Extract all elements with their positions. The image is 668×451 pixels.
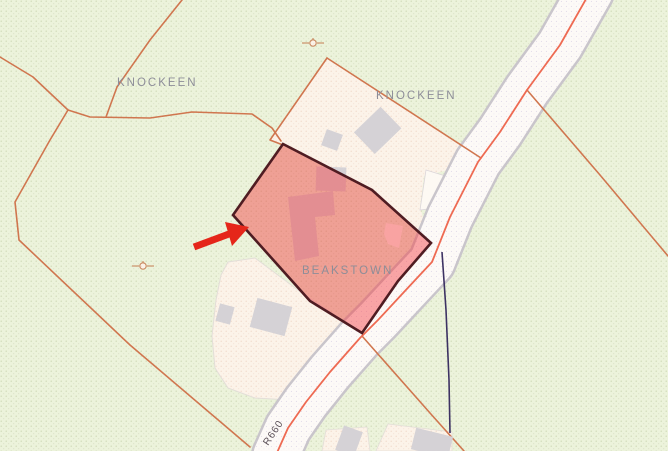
map-viewport[interactable]: KNOCKEEN KNOCKEEN BEAKSTOWN R660 — [0, 0, 668, 451]
townland-label-knockeen-west: KNOCKEEN — [117, 77, 198, 89]
map-canvas[interactable]: KNOCKEEN KNOCKEEN BEAKSTOWN R660 — [0, 0, 668, 451]
townland-label-beakstown: BEAKSTOWN — [302, 265, 393, 277]
townland-label-knockeen-east: KNOCKEEN — [376, 90, 457, 102]
